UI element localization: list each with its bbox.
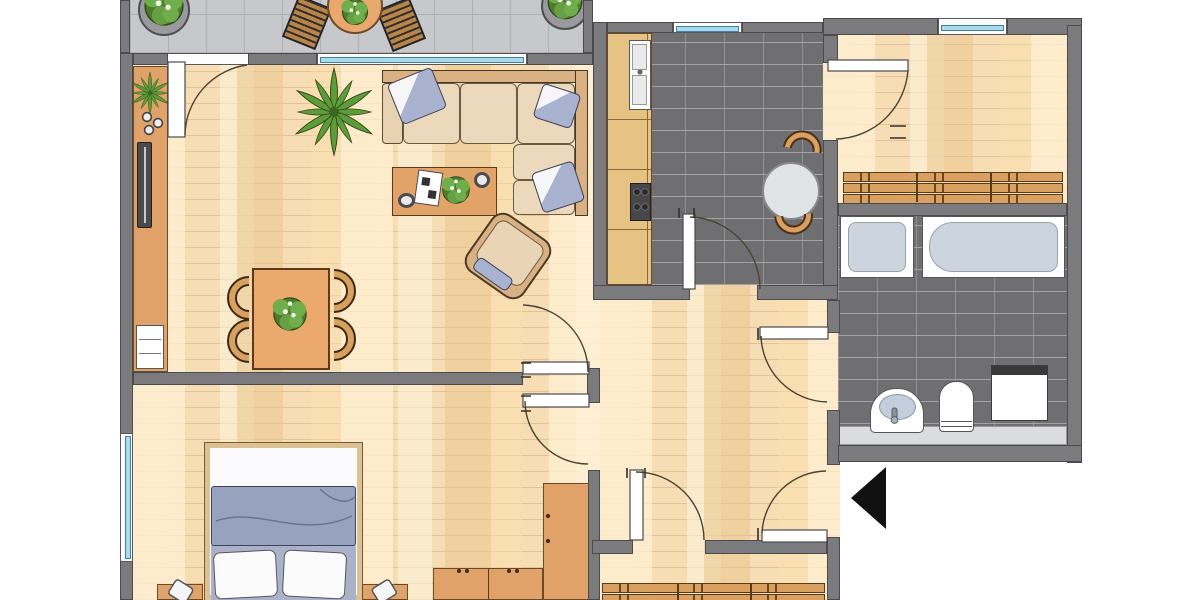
shelf-divider (916, 172, 918, 202)
stove (630, 183, 651, 221)
sofa-cushion (460, 83, 517, 144)
shelf-slat-row (602, 583, 825, 593)
bedroom-window (120, 433, 133, 562)
balcony-wall-right (583, 0, 593, 53)
washer-control-band (992, 366, 1047, 375)
wall-living-top (133, 53, 168, 65)
wardrobe-corner-unit (543, 483, 590, 600)
nightstand-left (157, 584, 203, 600)
shelf-line (139, 353, 161, 354)
window-glass (125, 436, 131, 559)
shelf-slat-row (843, 183, 1063, 193)
kitchen-table (762, 162, 820, 220)
bed-blanket (211, 486, 356, 546)
floor-plan (0, 0, 1200, 600)
wall-kitchen-top (742, 22, 823, 33)
counter-seam (608, 229, 651, 230)
book-mark (421, 177, 430, 186)
wall-living-bedroom (133, 372, 523, 385)
counter-seam (608, 119, 651, 120)
kitchen-sink (629, 40, 651, 110)
bathtub (922, 216, 1065, 278)
shelf-line (139, 339, 161, 340)
wardrobe-bottom-unit (433, 568, 543, 600)
shower-basin (848, 222, 906, 272)
wall-kitchen-bottom (757, 285, 838, 300)
washbasin (870, 388, 924, 433)
wall-kitchen-left (593, 22, 607, 300)
wall-storage-bath (838, 203, 1067, 216)
wall-storage-top (823, 18, 938, 35)
tv-screen-line (144, 147, 146, 223)
entrance-arrow-icon (851, 467, 886, 529)
window-glass (941, 25, 1004, 31)
window-glass (320, 57, 524, 63)
tv (137, 142, 152, 228)
shelf-divider (677, 583, 679, 600)
open-book (414, 169, 443, 206)
wall-bedroom-right (588, 470, 600, 600)
wall-kitchen-storage (823, 140, 838, 300)
window-glass (676, 26, 739, 32)
shower-tray (840, 216, 914, 278)
storage-shelf-unit (843, 172, 1063, 202)
wall-bath-bottom (838, 445, 1082, 462)
sink-drainer (632, 75, 647, 105)
washing-machine (991, 365, 1048, 421)
dining-table (252, 268, 330, 370)
shelf-slat-row (843, 172, 1063, 182)
storage-room-window (938, 18, 1007, 35)
bed-pillow-left (213, 549, 278, 599)
wall-hall-right (827, 300, 840, 333)
shelf-divider (990, 172, 992, 202)
wardrobe-divider (488, 569, 489, 599)
tub-basin (929, 222, 1058, 272)
bowl (398, 193, 415, 208)
lower-room-shelf-unit (602, 583, 825, 600)
wall-living-top (527, 53, 593, 65)
wall-lower-room-top (592, 540, 633, 554)
book-mark (428, 190, 437, 199)
shelf-divider (750, 583, 752, 600)
shelf-slat-row (602, 594, 825, 600)
bowl (474, 172, 490, 188)
nightstand-right (362, 584, 408, 600)
wall-hall-right (827, 537, 840, 600)
kitchen-window (673, 22, 742, 33)
sink-basin (632, 44, 647, 70)
wall-pillar (587, 368, 600, 403)
wall-shelf (136, 325, 164, 369)
wall-kitchen-top (607, 22, 673, 33)
living-room-window (317, 53, 527, 65)
wall-living-top (248, 53, 317, 65)
basin-bowl (879, 394, 916, 420)
balcony-door-sill (168, 53, 248, 65)
counter-seam (608, 169, 651, 170)
toilet (939, 381, 974, 432)
wall-lower-room-top (705, 540, 827, 554)
toilet-line (941, 426, 972, 427)
balcony-wall-left (120, 0, 130, 53)
bed-pillow-right (282, 549, 347, 599)
wall-kitchen-storage (823, 35, 838, 63)
wall-right (1067, 25, 1082, 463)
toilet-line (941, 421, 972, 422)
wall-kitchen-bottom (593, 285, 690, 300)
